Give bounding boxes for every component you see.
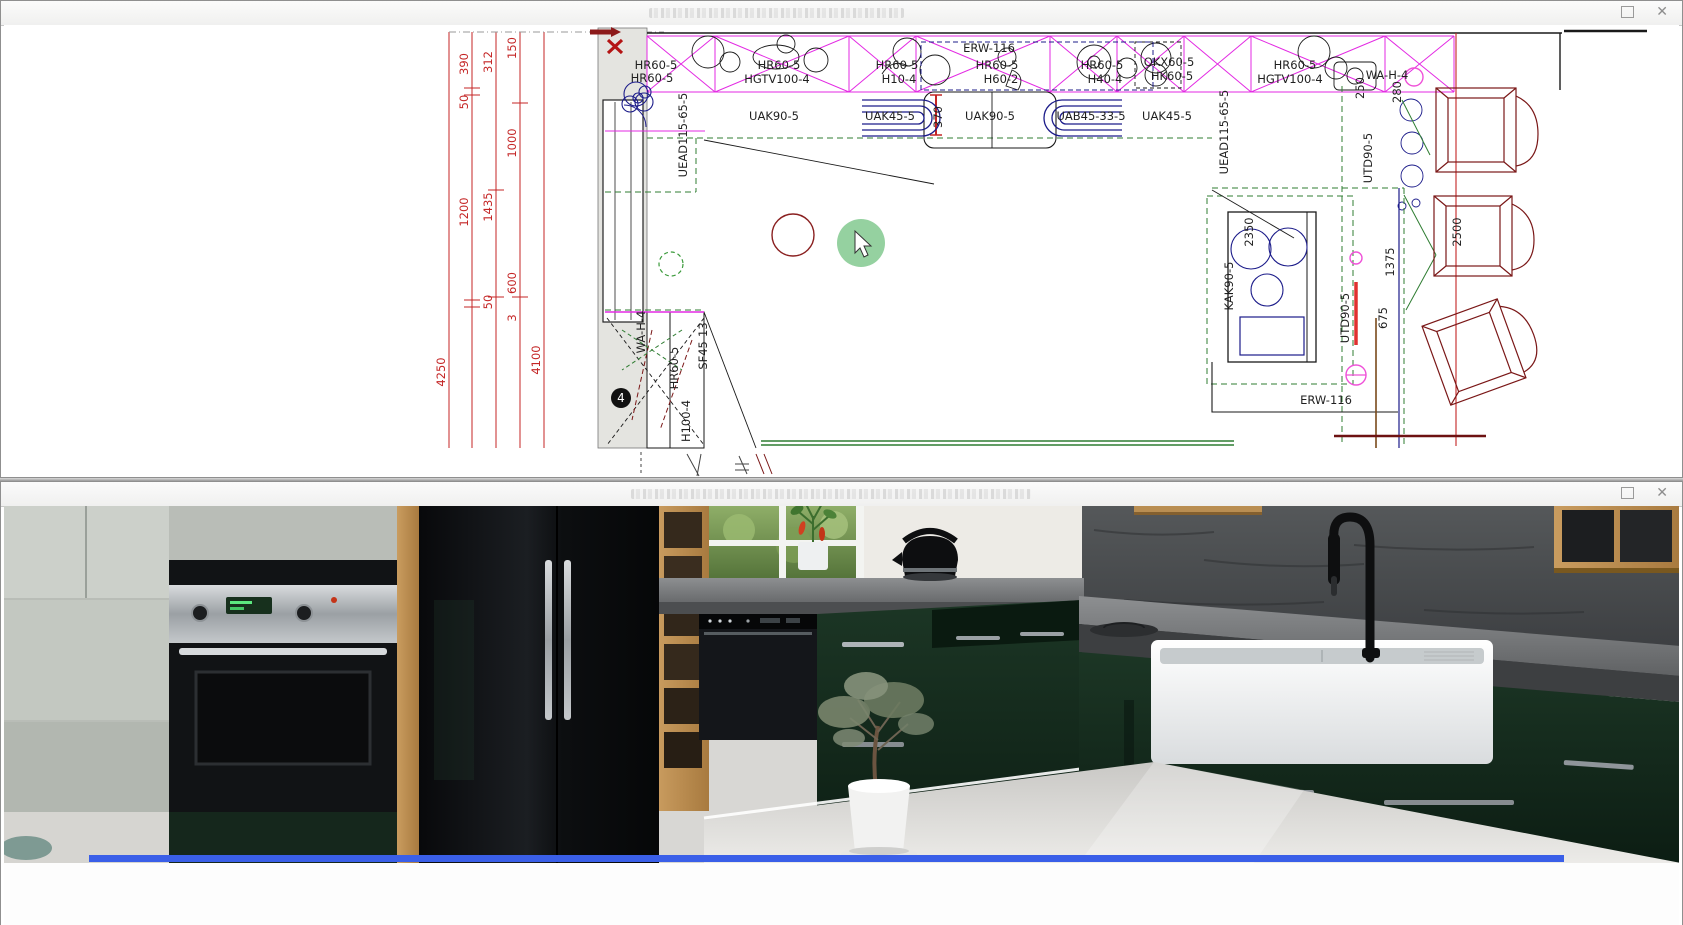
plan-label: HR60-5	[1274, 58, 1317, 72]
plan-label: 150	[505, 37, 519, 59]
plan-label: 1000	[505, 128, 519, 157]
plan-label: HR60-5	[667, 347, 681, 390]
lower-marks	[641, 452, 772, 476]
plan-label: HGTV100-4	[1257, 72, 1322, 86]
dimension-lines	[449, 32, 544, 448]
plan-label: H100-4	[679, 400, 693, 442]
pendant-circle	[772, 214, 814, 256]
plan-label: HR60-5	[635, 58, 678, 72]
plan-label: ERW-116	[963, 41, 1015, 55]
close-icon[interactable]: ✕	[1656, 486, 1668, 500]
render-window-titlebar[interactable]: ✕	[1, 482, 1682, 507]
diagonals	[607, 140, 1294, 448]
plan-label: UEAD115-65-5	[1217, 90, 1231, 175]
plan-label: 2350	[1242, 217, 1256, 246]
bench-lines	[761, 441, 1234, 445]
plan-label: UTD90-5	[1361, 133, 1375, 183]
plan-label: UAK90-5	[965, 109, 1015, 123]
plan-canvas[interactable]: HR60-5HR60-5HR60-5HGTV100-4HR60-5H10-4ER…	[4, 25, 1679, 477]
plan-label: UTD90-5	[1338, 293, 1352, 343]
desktop: ✕	[0, 0, 1683, 925]
black-fridge	[419, 506, 659, 863]
plan-labels: HR60-5HR60-5HR60-5HGTV100-4HR60-5H10-4ER…	[434, 37, 1464, 442]
maximize-icon[interactable]	[1621, 487, 1634, 499]
dishwasher	[699, 614, 817, 740]
plan-label: 1375	[1383, 247, 1397, 276]
plan-label: 1435	[481, 192, 495, 221]
plan-label: KAK90-5	[1222, 262, 1236, 311]
wall-cabinets-magenta	[605, 36, 1454, 131]
plan-label: SF45-13	[696, 322, 710, 369]
render-window-title-illegible	[631, 489, 1031, 499]
floor-plan-window: ✕	[0, 0, 1683, 478]
cursor	[837, 219, 885, 267]
plan-label: 312	[481, 51, 495, 73]
plan-label: WA-H-4	[1366, 68, 1409, 82]
plan-window-title-illegible	[649, 8, 904, 18]
plan-label: 2500	[1450, 217, 1464, 246]
selection-bar[interactable]	[89, 855, 1564, 862]
plan-label: ERW-116	[1300, 393, 1352, 407]
plan-label: 600	[505, 272, 519, 294]
plan-label: UEAD115-65-5	[676, 93, 690, 178]
plan-label: OKX60-5	[1144, 55, 1195, 69]
close-icon[interactable]: ✕	[1656, 5, 1668, 19]
chairs	[1422, 88, 1547, 405]
plan-label: H40-4	[1088, 72, 1123, 86]
builtin-oven	[169, 560, 397, 863]
plan-label: 675	[1376, 307, 1390, 329]
plan-label: 4	[617, 391, 625, 405]
plan-label: HK60-5	[1151, 69, 1193, 83]
plan-label: HGTV100-4	[744, 72, 809, 86]
floor-plan-drawing: HR60-5HR60-5HR60-5HGTV100-4HR60-5H10-4ER…	[4, 25, 1679, 477]
plan-label: 280	[1390, 81, 1404, 103]
render-window-lower-area	[4, 863, 1679, 925]
plan-label: UAK90-5	[749, 109, 799, 123]
plan-label: UAK45-5	[865, 109, 915, 123]
maximize-icon[interactable]	[1621, 6, 1634, 18]
kitchen-render	[4, 506, 1679, 863]
plan-label: 1200	[457, 197, 471, 226]
plan-label: 390	[457, 53, 471, 75]
plan-label: 50	[457, 95, 471, 110]
plan-label: HR60-5	[758, 58, 801, 72]
plan-label: H10-4	[882, 72, 917, 86]
plan-label: H60-2	[984, 72, 1019, 86]
plan-label: 250	[1353, 77, 1367, 99]
plan-label: 50	[481, 295, 495, 310]
plan-label: WA-H-4	[634, 311, 648, 354]
plan-label: HR60-5	[876, 58, 919, 72]
render-3d-window: ✕	[0, 481, 1683, 925]
plan-label: HR60-5	[631, 71, 674, 85]
plan-label: 4250	[434, 357, 448, 386]
plan-label: 3	[505, 314, 519, 321]
spot-circle	[659, 252, 683, 276]
plan-label: UAB45-33-5	[1056, 109, 1125, 123]
render-viewport[interactable]	[4, 506, 1679, 863]
plan-window-titlebar[interactable]: ✕	[1, 1, 1682, 26]
island	[1212, 212, 1398, 412]
plan-label: HR60-5	[976, 58, 1019, 72]
plan-label: HR60-5	[1081, 58, 1124, 72]
plan-label: 4100	[529, 345, 543, 374]
sink	[1151, 640, 1493, 764]
plan-label: 370	[931, 106, 945, 128]
plan-label: UAK45-5	[1142, 109, 1192, 123]
